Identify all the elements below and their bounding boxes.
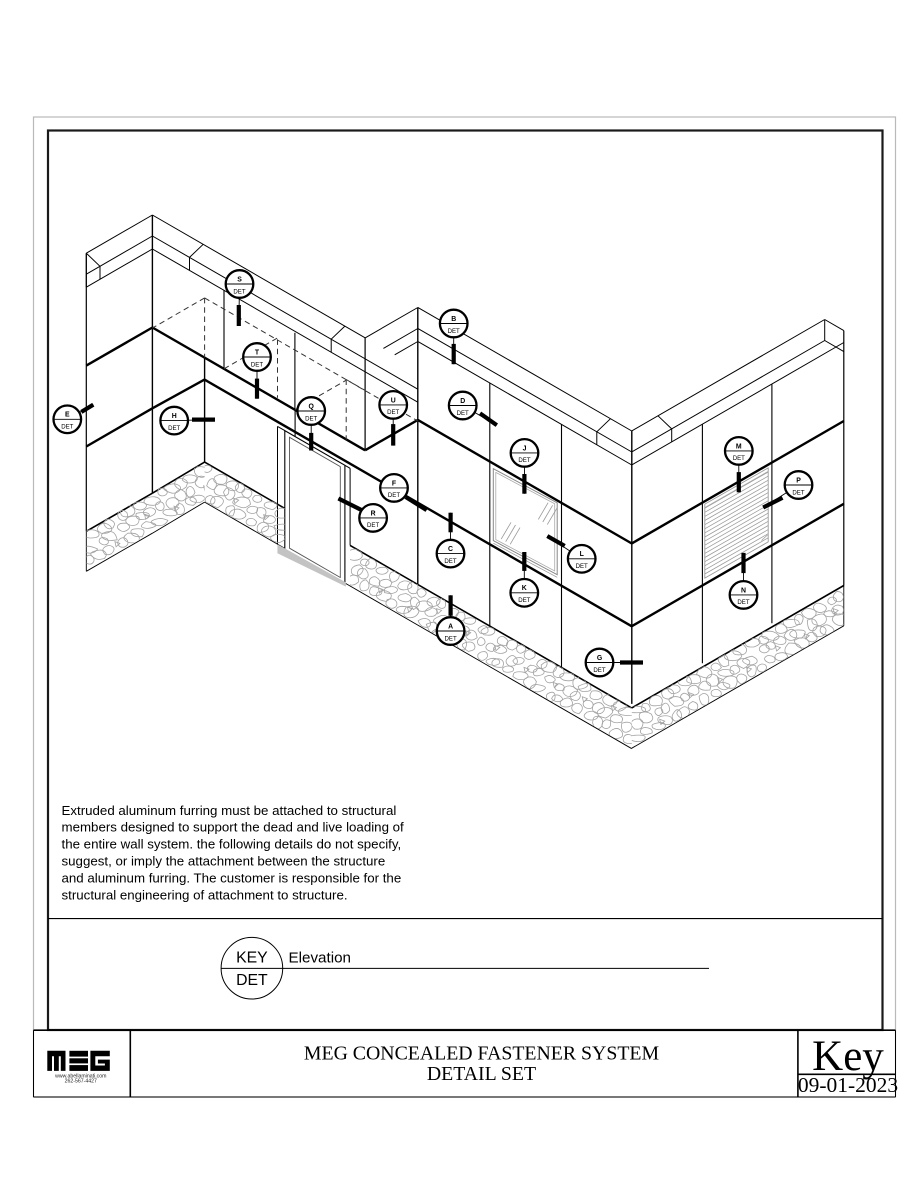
svg-text:DET: DET	[236, 972, 268, 989]
svg-text:N: N	[741, 587, 746, 594]
svg-text:J: J	[523, 445, 527, 452]
svg-text:B: B	[451, 316, 456, 323]
svg-text:U: U	[391, 397, 396, 404]
svg-text:Elevation: Elevation	[289, 949, 351, 966]
svg-text:and aluminum furring. The cust: and aluminum furring. The customer is re…	[62, 870, 402, 885]
svg-text:DET: DET	[792, 489, 804, 496]
svg-text:DET: DET	[737, 599, 749, 606]
svg-text:structural engineering of atta: structural engineering of attachment to …	[62, 887, 348, 902]
svg-text:DET: DET	[251, 361, 263, 368]
svg-text:DET: DET	[367, 522, 379, 529]
svg-text:Extruded aluminum furring must: Extruded aluminum furring must be attach…	[62, 803, 397, 818]
svg-text:DET: DET	[444, 558, 456, 565]
svg-text:DET: DET	[448, 328, 460, 335]
svg-text:DET: DET	[518, 457, 530, 464]
svg-text:C: C	[448, 546, 453, 553]
svg-text:DET: DET	[233, 288, 245, 295]
svg-text:M: M	[736, 443, 742, 450]
svg-text:suggest, or imply the attachme: suggest, or imply the attachment between…	[62, 854, 386, 869]
svg-text:DET: DET	[733, 455, 745, 462]
svg-text:E: E	[65, 412, 70, 419]
svg-text:DET: DET	[388, 492, 400, 499]
svg-text:G: G	[597, 655, 602, 662]
svg-text:DET: DET	[305, 415, 317, 422]
svg-text:KEY: KEY	[236, 949, 268, 966]
svg-text:L: L	[580, 551, 584, 558]
svg-text:DET: DET	[387, 409, 399, 416]
svg-text:members designed to support th: members designed to support the dead and…	[62, 820, 405, 835]
svg-text:S: S	[237, 276, 242, 283]
svg-text:the entire wall system. the fo: the entire wall system. the following de…	[62, 837, 402, 852]
svg-text:Q: Q	[309, 403, 315, 410]
svg-text:R: R	[371, 510, 376, 517]
svg-text:A: A	[448, 623, 453, 630]
svg-text:D: D	[460, 398, 465, 405]
svg-text:H: H	[172, 413, 177, 420]
svg-text:DET: DET	[61, 424, 73, 431]
svg-text:DET: DET	[457, 410, 469, 417]
svg-text:P: P	[796, 477, 801, 484]
svg-text:DET: DET	[576, 563, 588, 570]
svg-text:K: K	[522, 585, 527, 592]
svg-text:DET: DET	[445, 635, 457, 642]
svg-text:DET: DET	[518, 597, 530, 604]
svg-text:DET: DET	[593, 667, 605, 674]
svg-text:MEG CONCEALED FASTENER SYSTEM: MEG CONCEALED FASTENER SYSTEM	[304, 1043, 660, 1065]
svg-text:09-01-2023: 09-01-2023	[798, 1073, 898, 1097]
svg-text:262-567-4427: 262-567-4427	[65, 1079, 97, 1085]
svg-text:F: F	[392, 480, 396, 487]
svg-text:DET: DET	[168, 425, 180, 432]
svg-text:DETAIL SET: DETAIL SET	[427, 1063, 536, 1085]
